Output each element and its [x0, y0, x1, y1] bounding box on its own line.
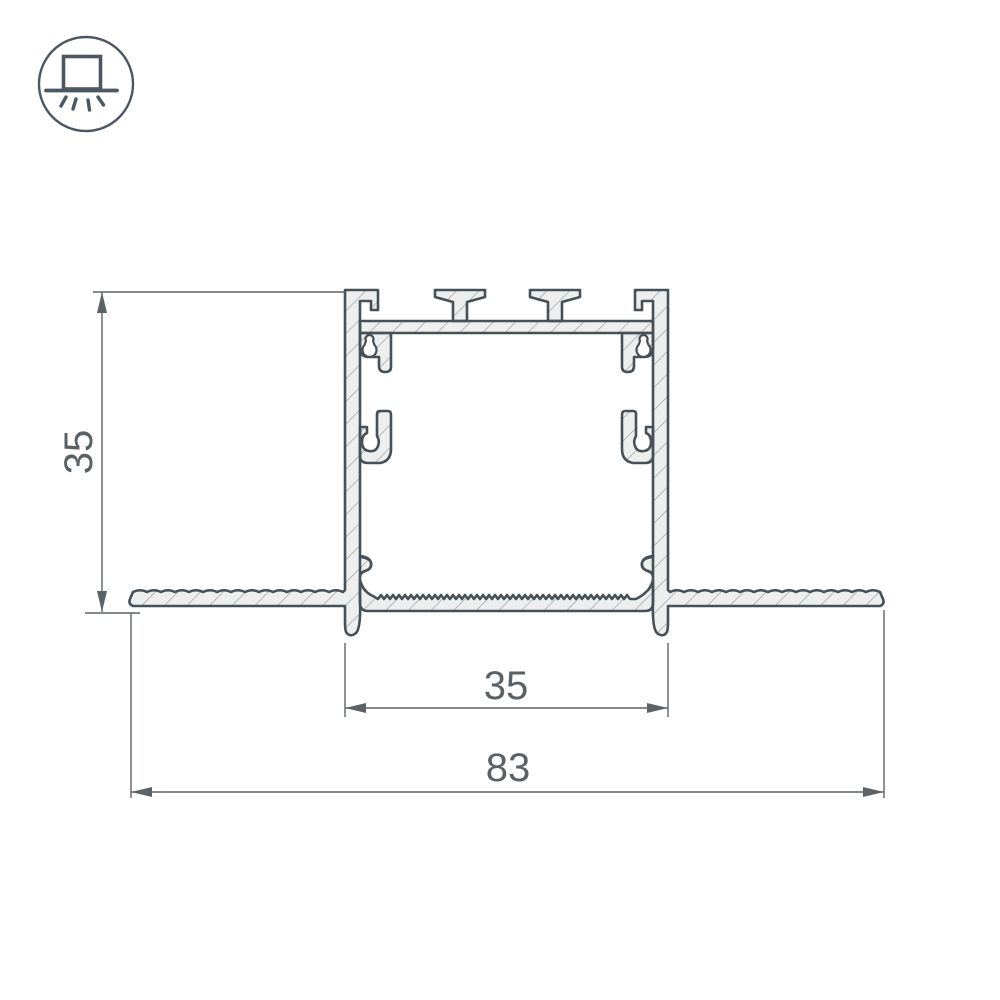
profile-outlines [129, 290, 883, 635]
overall-width-value: 83 [486, 746, 531, 790]
technical-drawing-page: 35 35 83 [0, 0, 1000, 1000]
icon-light-rays [61, 97, 104, 110]
aluminium-profile-body [0, 0, 1000, 1000]
icon-lamp-housing [64, 57, 101, 90]
arrowhead [647, 703, 668, 713]
recessed-light-icon [39, 37, 133, 131]
arrowhead [345, 703, 366, 713]
profile-hatch-fill [0, 0, 1000, 1000]
inner-width-value: 35 [484, 664, 529, 708]
screw-channel-cavities [363, 335, 651, 357]
dimension-height [85, 292, 345, 613]
arrowhead [97, 292, 107, 313]
height-value: 35 [57, 430, 101, 475]
arrowhead [97, 591, 107, 612]
profile-cross-section-drawing: 35 35 83 [0, 0, 1000, 1000]
dimension-annotations [85, 292, 884, 798]
arrowhead [131, 787, 152, 797]
arrowhead [863, 787, 884, 797]
icon-circle [39, 37, 133, 131]
